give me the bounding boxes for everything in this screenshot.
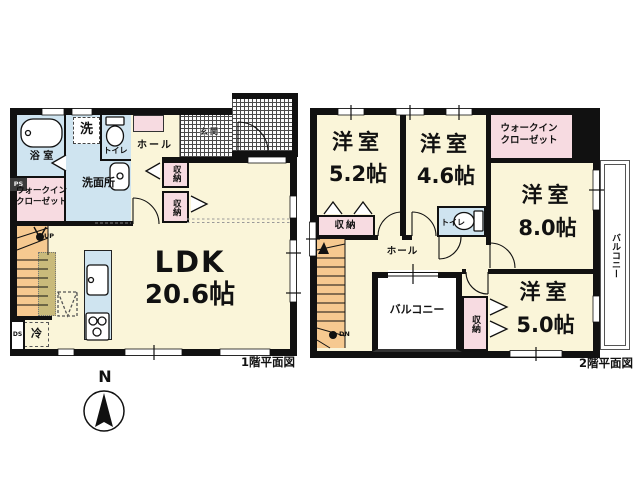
walkin-closet-1f-label-line1: ウォークイン (14, 187, 69, 197)
wall-room80-room50-a (462, 269, 466, 274)
floor2-caption: 2階平面図 (525, 357, 633, 370)
kitchen-unit (84, 250, 112, 340)
storage-1f-b: 収納 (162, 191, 189, 223)
entrance-porch (232, 93, 298, 157)
toilet-1f-label: トイレ (98, 147, 133, 156)
wall-under-entrance (162, 157, 297, 163)
fridge-space: 冷 (24, 322, 49, 347)
storage-2f-side: 収納 (462, 296, 488, 351)
walkin-closet-2f-label-line1: ウォークイン (488, 124, 570, 135)
duct-space-box: DS (10, 320, 25, 351)
room52-label: 洋室 (316, 131, 400, 155)
wall-wic-right-chunk (572, 115, 593, 163)
fridge-label: 冷 (31, 328, 42, 340)
up-label: UP (44, 233, 60, 240)
storage-2f-top-label: 収納 (334, 221, 357, 232)
walkin-closet-1f-label-line2: クローゼット (14, 198, 69, 208)
kitchen-counter (38, 252, 56, 316)
bathroom (17, 115, 66, 178)
compass-north-label: N (90, 368, 120, 386)
room46-label: 洋室 (404, 133, 488, 157)
wall-rooms-bottom-b (402, 235, 412, 240)
walkin-closet-2f-label-line2: クローゼット (488, 136, 570, 147)
shoe-cabinet (133, 115, 164, 132)
room52-size-label: 5.2帖 (311, 163, 405, 187)
washer-label: 洗 (80, 123, 93, 138)
room50-size-label: 5.0帖 (493, 314, 598, 338)
floor1-caption: 1階平面図 (190, 356, 295, 369)
bathroom-label: 浴 室 (17, 151, 66, 162)
hall-2f-label: ホール (375, 247, 430, 258)
balcony-inner-label: バルコニー (374, 304, 460, 316)
storage-2f-top: 収納 (317, 215, 375, 237)
duct-space-label: DS (13, 332, 22, 339)
toilet-2f-label: トイレ (438, 219, 468, 228)
storage-1f-b-label: 収納 (171, 199, 181, 216)
hall-1f-label: ホール (129, 140, 181, 151)
compass-icon (84, 391, 124, 431)
wall-room80-room50-b (488, 269, 593, 274)
balcony-side: バルコニー (600, 160, 630, 350)
entrance-label: 玄関 (188, 128, 232, 137)
dn-label: DN (339, 331, 357, 338)
room46-size-label: 4.6帖 (399, 165, 493, 189)
storage-1f-a-label: 収納 (171, 165, 181, 182)
washroom-label: 洗面所 (66, 177, 131, 189)
floorplan-page: 玄関 浴 室 ウォークイン クローゼット PS 洗面所 洗 トイレ ホール 収納… (0, 0, 636, 480)
storage-2f-side-label: 収納 (470, 315, 480, 333)
washer-box: 洗 (73, 117, 100, 144)
room80-size-label: 8.0帖 (495, 217, 600, 241)
balcony-side-label: バルコニー (610, 233, 620, 278)
room50-label: 洋室 (498, 281, 593, 305)
ldk-label: LDK (120, 246, 260, 278)
room80-label: 洋室 (500, 184, 595, 208)
ldk-size-label: 20.6帖 (110, 281, 270, 310)
